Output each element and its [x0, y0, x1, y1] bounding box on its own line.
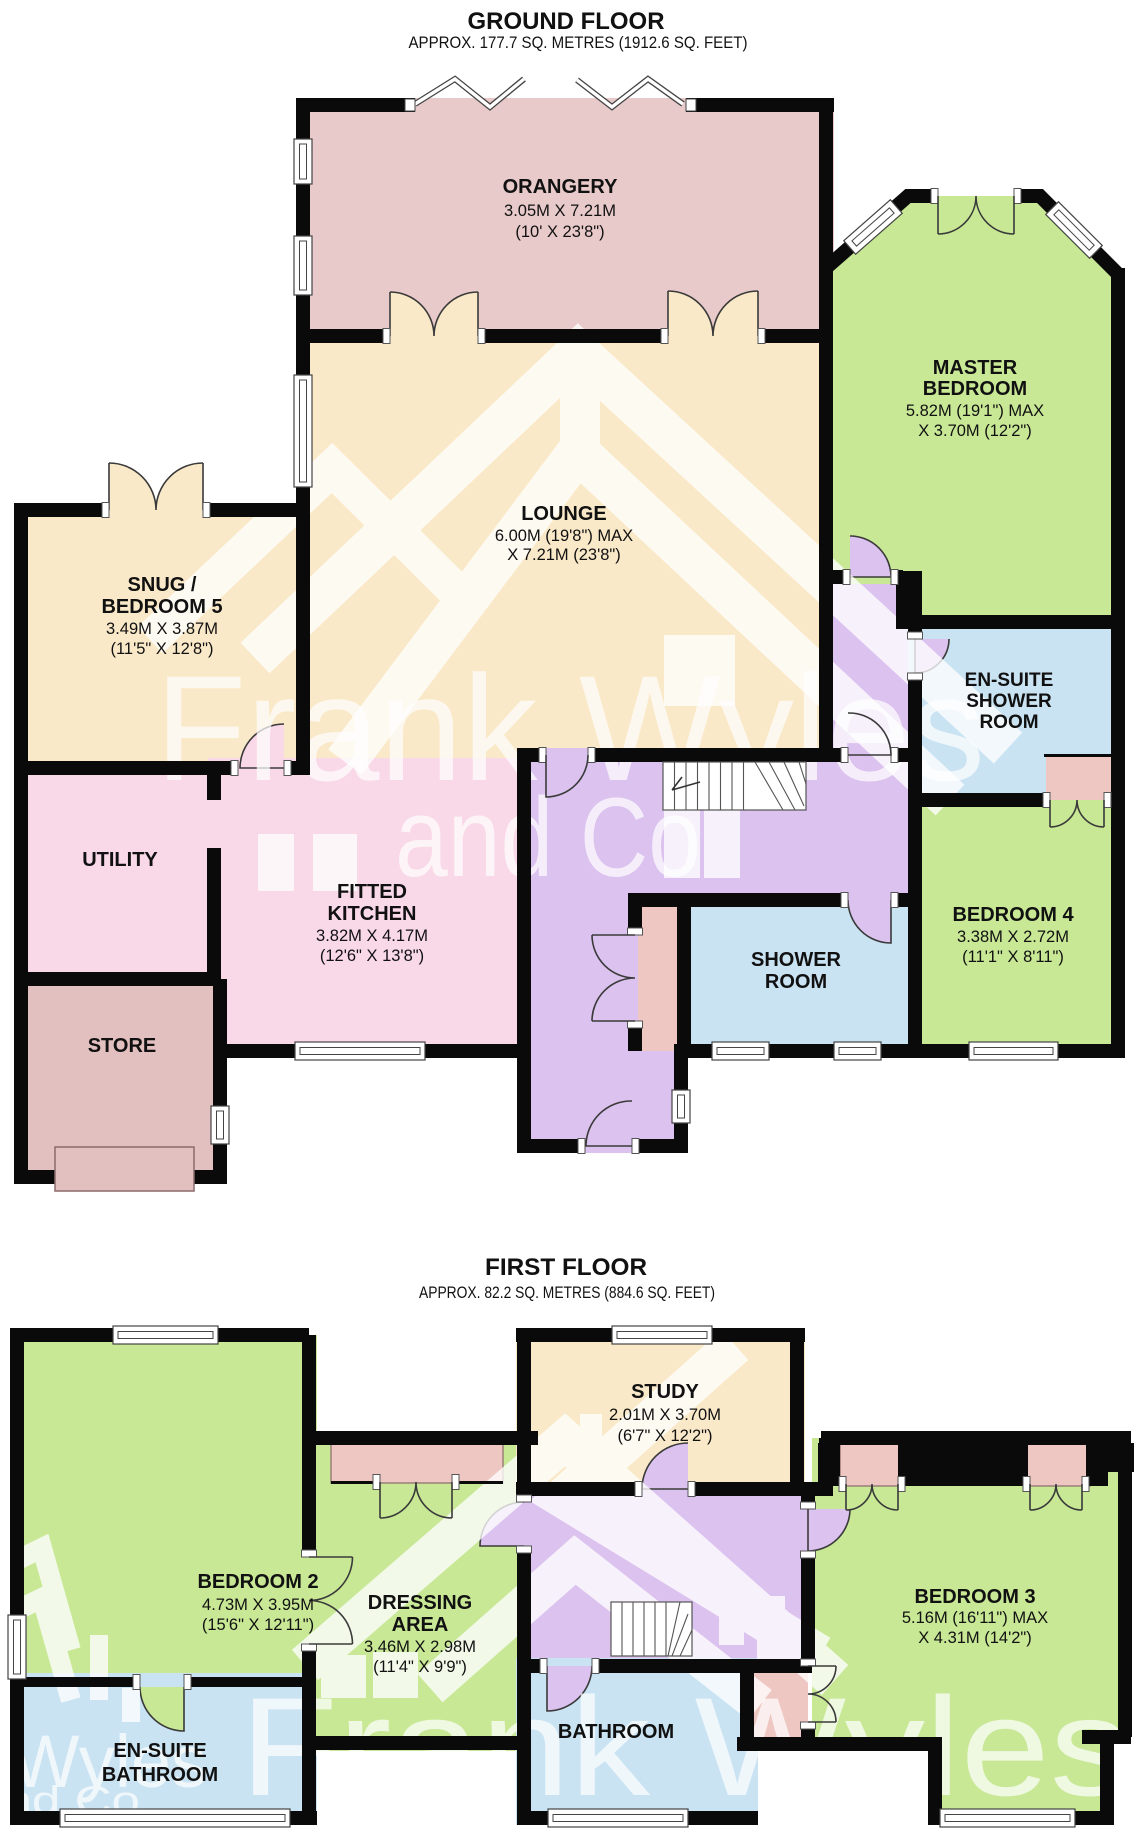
- svg-text:2.01M X 3.70M: 2.01M X 3.70M: [609, 1406, 721, 1424]
- svg-text:GROUND FLOOR: GROUND FLOOR: [468, 8, 665, 35]
- svg-text:3.46M X 2.98M: 3.46M X 2.98M: [364, 1638, 476, 1656]
- svg-text:EN-SUITE: EN-SUITE: [113, 1740, 206, 1762]
- svg-text:UTILITY: UTILITY: [82, 849, 158, 871]
- svg-text:SHOWER: SHOWER: [966, 691, 1052, 712]
- svg-text:X 4.31M (14'2"): X 4.31M (14'2"): [918, 1629, 1032, 1647]
- svg-text:5.16M (16'11") MAX: 5.16M (16'11") MAX: [902, 1609, 1048, 1627]
- svg-text:(12'6" X 13'8"): (12'6" X 13'8"): [320, 947, 424, 965]
- svg-text:BEDROOM 2: BEDROOM 2: [197, 1571, 318, 1593]
- svg-text:AREA: AREA: [392, 1614, 449, 1636]
- svg-text:EN-SUITE: EN-SUITE: [965, 670, 1054, 691]
- svg-text:(15'6" X 12'11"): (15'6" X 12'11"): [202, 1616, 314, 1634]
- svg-text:3.82M X 4.17M: 3.82M X 4.17M: [316, 927, 428, 945]
- svg-text:(11'5" X 12'8"): (11'5" X 12'8"): [110, 640, 213, 658]
- svg-text:STUDY: STUDY: [631, 1381, 699, 1403]
- svg-text:APPROX. 82.2 SQ. METRES (884.6: APPROX. 82.2 SQ. METRES (884.6 SQ. FEET): [419, 1283, 715, 1302]
- svg-text:FITTED: FITTED: [337, 881, 407, 903]
- svg-text:ROOM: ROOM: [765, 971, 827, 993]
- svg-text:SNUG /: SNUG /: [128, 574, 197, 596]
- svg-text:(6'7" X 12'2"): (6'7" X 12'2"): [617, 1427, 712, 1445]
- svg-text:BEDROOM 5: BEDROOM 5: [101, 596, 222, 618]
- svg-text:MASTER: MASTER: [933, 357, 1018, 379]
- svg-text:DRESSING: DRESSING: [368, 1592, 472, 1614]
- svg-text:SHOWER: SHOWER: [751, 949, 842, 971]
- svg-text:BATHROOM: BATHROOM: [102, 1764, 218, 1786]
- svg-text:3.38M X 2.72M: 3.38M X 2.72M: [957, 928, 1069, 946]
- svg-text:6.00M (19'8") MAX: 6.00M (19'8") MAX: [495, 527, 633, 545]
- svg-text:BEDROOM: BEDROOM: [923, 378, 1027, 400]
- svg-text:KITCHEN: KITCHEN: [328, 903, 417, 925]
- svg-text:X 3.70M (12'2"): X 3.70M (12'2"): [918, 422, 1032, 440]
- svg-text:BATHROOM: BATHROOM: [558, 1721, 674, 1743]
- svg-text:APPROX. 177.7 SQ. METRES (1912: APPROX. 177.7 SQ. METRES (1912.6 SQ. FEE…: [409, 33, 748, 52]
- svg-text:3.49M X 3.87M: 3.49M X 3.87M: [106, 620, 218, 638]
- svg-text:4.73M X 3.95M: 4.73M X 3.95M: [202, 1596, 314, 1614]
- svg-text:(11'1" X 8'11"): (11'1" X 8'11"): [962, 948, 1064, 966]
- svg-text:ROOM: ROOM: [979, 712, 1038, 733]
- svg-text:5.82M (19'1") MAX: 5.82M (19'1") MAX: [906, 402, 1044, 420]
- svg-text:X 7.21M (23'8"): X 7.21M (23'8"): [507, 546, 621, 564]
- svg-text:STORE: STORE: [88, 1035, 157, 1057]
- svg-text:3.05M X 7.21M: 3.05M X 7.21M: [504, 202, 616, 220]
- svg-text:(10' X 23'8"): (10' X 23'8"): [515, 223, 604, 241]
- svg-text:BEDROOM 4: BEDROOM 4: [952, 904, 1074, 926]
- svg-text:LOUNGE: LOUNGE: [521, 503, 607, 525]
- svg-text:BEDROOM 3: BEDROOM 3: [914, 1586, 1035, 1608]
- svg-text:FIRST FLOOR: FIRST FLOOR: [485, 1254, 647, 1281]
- svg-text:and Co: and Co: [395, 775, 701, 900]
- svg-text:(11'4" X 9'9"): (11'4" X 9'9"): [373, 1658, 467, 1676]
- svg-text:ORANGERY: ORANGERY: [503, 176, 618, 198]
